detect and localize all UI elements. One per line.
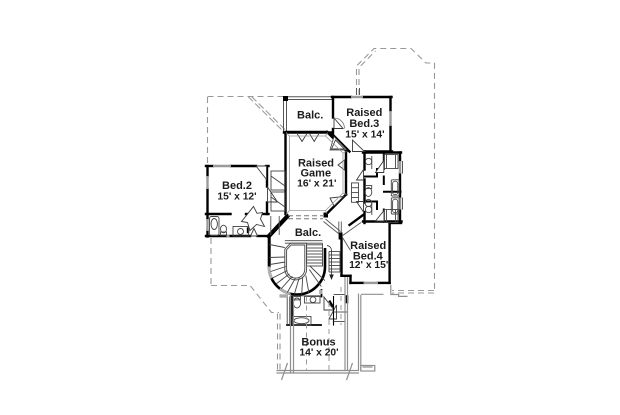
svg-text:14' x 20': 14' x 20'	[299, 347, 338, 358]
svg-text:Balc.: Balc.	[297, 109, 323, 121]
svg-text:16' x 21': 16' x 21'	[297, 178, 336, 189]
svg-text:12' x 15': 12' x 15'	[349, 260, 388, 271]
svg-text:15' x 14': 15' x 14'	[345, 129, 384, 140]
svg-text:15' x 12': 15' x 12'	[217, 192, 256, 203]
svg-text:Balc.: Balc.	[295, 227, 321, 239]
svg-text:Bed.2: Bed.2	[222, 180, 252, 192]
svg-text:Bed.3: Bed.3	[349, 118, 379, 130]
